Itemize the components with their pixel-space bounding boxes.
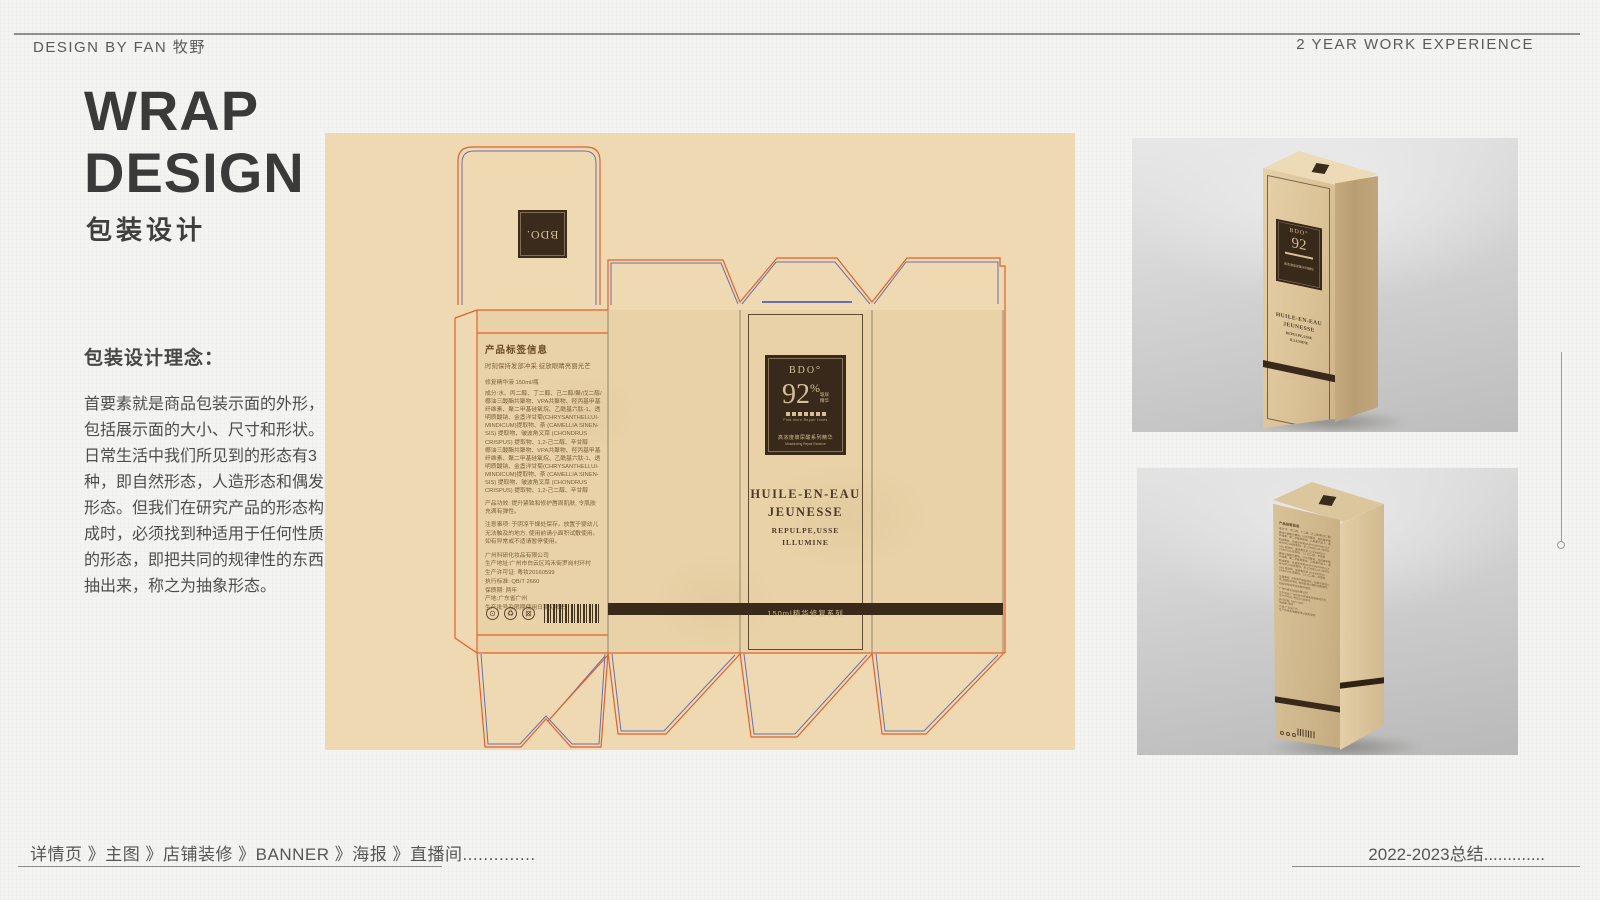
lid-brand-square: BDO. bbox=[518, 210, 567, 258]
mockup1-top-brand-square bbox=[1312, 163, 1330, 174]
dieline-cut-fold-lines bbox=[325, 133, 1075, 750]
mockup1-label-zh: 高浓度玻尿酸系列精华 bbox=[1276, 260, 1322, 274]
footer-left-rule bbox=[18, 866, 442, 867]
label-bottom-zh: 高浓度玻尿酸系列精华 bbox=[765, 434, 846, 441]
back-panel-efficacy: 产品功效: 提升紧致和修护唇周肌肤, 令肌肤 充满有弹性。 bbox=[485, 500, 605, 516]
decorative-line-dot bbox=[1557, 541, 1565, 549]
eco-cert-icon: ⊙ bbox=[486, 607, 499, 620]
footer-summary: 2022-2023总结............. bbox=[1368, 840, 1545, 865]
percent-note: 玻尿 精华 bbox=[820, 392, 829, 403]
page-title-line2: DESIGN bbox=[84, 142, 305, 204]
mockup1-box-side bbox=[1335, 176, 1378, 422]
label-bottom-en: Moisturizing Repair Essence bbox=[765, 442, 846, 446]
certification-icons: ⊙ ♻ ⊠ bbox=[486, 607, 535, 620]
mockup2-box-back: 产品标签信息 成分:水、丙二醇、丁二醇、己二醇/聚/戊二醇/ 椰油三酸酯共聚物、… bbox=[1273, 500, 1340, 748]
back-panel-info: 产品标签信息 时刻保持发部冲采 绽放眼睛亮丽光芒 修复精华液 150ml/瓶 成… bbox=[485, 342, 605, 613]
footer-breadcrumb: 详情页 》主图 》店铺装修 》BANNER 》海报 》直播间..........… bbox=[30, 840, 536, 865]
front-brand-label: BDO° 92 % 玻尿 精华 Find more Repair tones 高… bbox=[765, 355, 846, 455]
product-name-line3: REPULPE,USSE bbox=[748, 525, 863, 537]
series-band-text: 150ml精华修复系列 bbox=[767, 609, 843, 618]
label-square-row bbox=[765, 412, 846, 416]
lid-brand-text: BDO. bbox=[526, 227, 558, 242]
recycle-icon: ♻ bbox=[504, 607, 517, 620]
decorative-vertical-line bbox=[1561, 352, 1562, 542]
mockup2-box-side bbox=[1340, 504, 1384, 750]
brand-name: BDO° bbox=[765, 365, 846, 376]
mockup1-box-front: BDO° 92 高浓度玻尿酸系列精华 HUILE-EN-EAU JEUNESSE… bbox=[1263, 168, 1335, 428]
mockup2-back-text: 成分:水、丙二醇、丁二醇、己二醇/聚/戊二醇/ 椰油三酸酯共聚物、VPA共聚物、… bbox=[1279, 527, 1335, 582]
footer-right-rule bbox=[1292, 866, 1580, 867]
mockup2-barcode bbox=[1297, 728, 1315, 738]
mockup2-back-stripe bbox=[1273, 696, 1340, 713]
mockup1-brand-label: BDO° 92 高浓度玻尿酸系列精华 bbox=[1276, 219, 1322, 291]
product-name-line4: ILLUMINE bbox=[748, 537, 863, 549]
barcode bbox=[544, 604, 600, 623]
concept-heading: 包装设计理念： bbox=[84, 343, 224, 370]
page-subtitle: 包装设计 bbox=[86, 210, 206, 247]
page-title-line1: WRAP bbox=[84, 80, 305, 142]
mockup2-side-stripe bbox=[1340, 677, 1384, 688]
back-panel-heading: 产品标签信息 bbox=[485, 342, 605, 356]
mockup2-cert-icons bbox=[1280, 731, 1296, 738]
series-band: 150ml精华修复系列 bbox=[608, 603, 1003, 615]
mockup-photo-back: 产品标签信息 成分:水、丙二醇、丁二醇、己二醇/聚/戊二醇/ 椰油三酸酯共聚物、… bbox=[1137, 468, 1518, 755]
percent-number: 92 bbox=[782, 382, 810, 408]
header-rule bbox=[14, 33, 1580, 35]
back-panel-caution: 注意事项: 于阴凉干燥处保存。放置于婴幼儿 无法触及的地方, 使用前请小面积试敷… bbox=[485, 521, 605, 545]
concept-body: 首要素就是商品包装示面的外形， 包括展示面的大小、尺寸和形状。 日常生活中我们所… bbox=[84, 392, 364, 600]
mockup1-front-frame bbox=[1267, 175, 1330, 432]
mockup-photo-front: BDO° 92 高浓度玻尿酸系列精华 HUILE-EN-EAU JEUNESSE… bbox=[1132, 138, 1518, 432]
product-name-line1: HUILE-EN-EAU bbox=[748, 485, 863, 503]
back-panel-tagline: 时刻保持发部冲采 绽放眼睛亮丽光芒 bbox=[485, 361, 605, 370]
no-litter-icon: ⊠ bbox=[522, 607, 535, 620]
header-experience: 2 YEAR WORK EXPERIENCE bbox=[1296, 36, 1534, 53]
back-panel-volume: 修复精华液 150ml/瓶 bbox=[485, 377, 605, 386]
page-title: WRAP DESIGN bbox=[84, 80, 305, 204]
front-product-name: HUILE-EN-EAU JEUNESSE REPULPE,USSE ILLUM… bbox=[748, 485, 863, 549]
label-caption-en: Find more Repair tones bbox=[765, 418, 846, 422]
product-name-line2: JEUNESSE bbox=[748, 503, 863, 521]
header-author: DESIGN BY FAN 牧野 bbox=[33, 36, 206, 57]
percent-sign: % bbox=[810, 382, 820, 394]
back-panel-ingredients: 成分:水、丙二醇、丁二醇、己二醇/聚/戊二醇/ 椰油三酸酯共聚物、VPA共聚物、… bbox=[485, 390, 605, 495]
dieline-canvas: BDO. 产品标签信息 时刻保持发部冲采 绽放眼睛亮丽光芒 修复精华液 150m… bbox=[325, 133, 1075, 750]
mockup2-top-brand-square bbox=[1319, 495, 1337, 506]
